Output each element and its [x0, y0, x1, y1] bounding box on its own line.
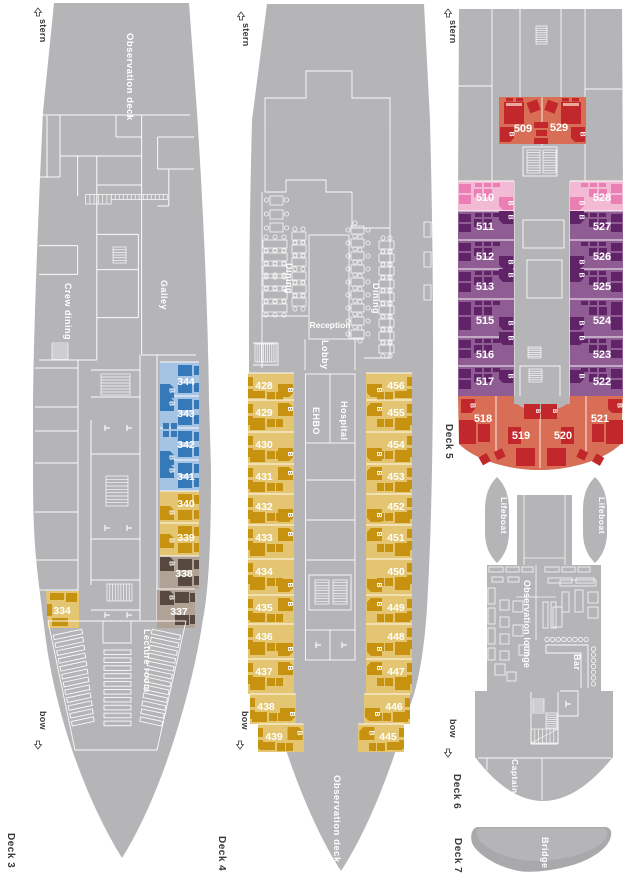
- svg-text:B: B: [286, 407, 293, 412]
- svg-text:339: 339: [177, 532, 195, 544]
- svg-text:447: 447: [387, 666, 405, 678]
- svg-text:510: 510: [476, 192, 494, 204]
- svg-text:B: B: [507, 215, 514, 220]
- svg-text:B: B: [579, 132, 586, 137]
- svg-text:Deck 4: Deck 4: [216, 836, 227, 871]
- svg-text:338: 338: [175, 568, 193, 580]
- svg-text:519: 519: [512, 430, 530, 442]
- svg-text:449: 449: [387, 602, 405, 614]
- svg-text:451: 451: [387, 532, 405, 544]
- svg-text:437: 437: [255, 666, 273, 678]
- svg-text:528: 528: [593, 192, 611, 204]
- svg-text:B: B: [375, 583, 382, 588]
- svg-text:453: 453: [387, 471, 405, 483]
- svg-text:B: B: [296, 731, 303, 736]
- svg-text:B: B: [507, 273, 514, 278]
- svg-text:B: B: [375, 602, 382, 607]
- svg-text:B: B: [288, 712, 295, 717]
- svg-text:Galley: Galley: [159, 280, 169, 310]
- svg-text:431: 431: [255, 471, 273, 483]
- svg-text:529: 529: [550, 122, 568, 134]
- svg-text:Deck 7: Deck 7: [452, 838, 463, 873]
- svg-text:433: 433: [255, 532, 273, 544]
- svg-text:B: B: [373, 712, 380, 717]
- svg-text:B: B: [469, 403, 476, 408]
- svg-text:521: 521: [591, 413, 609, 425]
- svg-text:B: B: [168, 468, 175, 473]
- svg-text:B: B: [286, 666, 293, 671]
- svg-text:B: B: [578, 374, 585, 379]
- svg-text:B: B: [578, 336, 585, 341]
- svg-text:B: B: [168, 561, 175, 566]
- svg-text:524: 524: [593, 315, 612, 327]
- svg-text:341: 341: [177, 471, 195, 483]
- svg-text:B: B: [375, 666, 382, 671]
- svg-text:B: B: [286, 583, 293, 588]
- svg-text:B: B: [286, 452, 293, 457]
- svg-text:B: B: [286, 602, 293, 607]
- svg-text:Deck 6: Deck 6: [451, 774, 462, 809]
- svg-text:Observation lounge: Observation lounge: [522, 580, 532, 668]
- svg-text:B: B: [367, 731, 374, 736]
- svg-text:bow: bow: [448, 719, 458, 739]
- svg-text:Captain: Captain: [510, 759, 520, 794]
- svg-text:B: B: [578, 215, 585, 220]
- svg-text:509: 509: [514, 123, 532, 135]
- svg-text:334: 334: [53, 605, 71, 617]
- svg-text:B: B: [375, 452, 382, 457]
- svg-text:B: B: [375, 471, 382, 476]
- svg-text:B: B: [507, 260, 514, 265]
- svg-text:340: 340: [177, 498, 195, 510]
- svg-text:435: 435: [255, 602, 273, 614]
- svg-text:B: B: [375, 513, 382, 518]
- svg-text:525: 525: [593, 281, 611, 293]
- svg-text:B: B: [168, 455, 175, 460]
- svg-text:518: 518: [474, 413, 492, 425]
- svg-text:513: 513: [476, 281, 494, 293]
- svg-text:Deck 5: Deck 5: [443, 424, 454, 459]
- svg-text:430: 430: [255, 439, 273, 451]
- svg-text:516: 516: [476, 349, 494, 361]
- svg-text:515: 515: [476, 315, 494, 327]
- svg-text:B: B: [286, 532, 293, 537]
- svg-text:456: 456: [387, 380, 405, 392]
- svg-text:429: 429: [255, 407, 273, 419]
- svg-text:436: 436: [255, 631, 273, 643]
- svg-text:445: 445: [379, 731, 397, 743]
- svg-text:B: B: [578, 260, 585, 265]
- svg-text:Dining: Dining: [284, 263, 294, 294]
- svg-text:527: 527: [593, 221, 611, 233]
- svg-text:B: B: [375, 388, 382, 393]
- svg-text:B: B: [551, 409, 557, 414]
- svg-text:B: B: [578, 273, 585, 278]
- svg-text:Crew dining: Crew dining: [63, 283, 73, 340]
- svg-text:Lobby: Lobby: [320, 340, 330, 370]
- svg-text:Observation deck: Observation deck: [124, 33, 135, 121]
- svg-text:B: B: [168, 538, 175, 543]
- svg-text:stern: stern: [241, 23, 251, 47]
- svg-text:B: B: [507, 201, 514, 206]
- svg-text:B: B: [375, 407, 382, 412]
- svg-text:B: B: [168, 595, 175, 600]
- svg-text:B: B: [286, 513, 293, 518]
- svg-text:439: 439: [265, 731, 283, 743]
- svg-text:434: 434: [255, 566, 273, 578]
- svg-text:446: 446: [385, 701, 403, 713]
- svg-text:455: 455: [387, 407, 405, 419]
- svg-text:428: 428: [255, 380, 273, 392]
- svg-text:bow: bow: [38, 711, 48, 731]
- svg-text:B: B: [286, 471, 293, 476]
- svg-text:B: B: [507, 336, 514, 341]
- svg-text:Hospital: Hospital: [339, 401, 349, 441]
- svg-text:B: B: [578, 321, 585, 326]
- svg-text:bow: bow: [240, 711, 250, 731]
- svg-text:450: 450: [387, 566, 405, 578]
- svg-text:337: 337: [170, 606, 188, 618]
- svg-text:517: 517: [476, 376, 494, 388]
- svg-text:B: B: [534, 409, 540, 414]
- svg-text:342: 342: [177, 439, 195, 451]
- svg-text:Observation deck: Observation deck: [331, 775, 342, 863]
- svg-text:526: 526: [593, 251, 611, 263]
- svg-text:Dining: Dining: [371, 283, 381, 314]
- svg-text:B: B: [507, 321, 514, 326]
- svg-text:B: B: [286, 388, 293, 393]
- svg-text:523: 523: [593, 349, 611, 361]
- svg-text:Bar: Bar: [572, 654, 582, 671]
- svg-text:B: B: [168, 388, 175, 393]
- svg-text:522: 522: [593, 376, 611, 388]
- svg-text:520: 520: [554, 430, 572, 442]
- svg-text:Bridge: Bridge: [540, 837, 550, 869]
- svg-text:512: 512: [476, 251, 494, 263]
- svg-text:B: B: [578, 201, 585, 206]
- svg-text:B: B: [168, 510, 175, 515]
- svg-text:454: 454: [387, 439, 405, 451]
- svg-text:511: 511: [476, 221, 494, 233]
- svg-text:Lifeboat: Lifeboat: [499, 497, 509, 534]
- svg-text:B: B: [507, 374, 514, 379]
- svg-text:stern: stern: [38, 19, 48, 43]
- svg-text:B: B: [286, 647, 293, 652]
- svg-text:EHBO: EHBO: [311, 407, 321, 435]
- svg-text:344: 344: [177, 376, 195, 388]
- svg-text:B: B: [375, 647, 382, 652]
- svg-text:B: B: [168, 401, 175, 406]
- svg-text:343: 343: [177, 408, 195, 420]
- svg-text:438: 438: [257, 701, 275, 713]
- svg-text:Reception: Reception: [309, 320, 350, 330]
- svg-text:448: 448: [387, 631, 405, 643]
- svg-text:stern: stern: [448, 20, 458, 44]
- svg-text:Deck 3: Deck 3: [5, 833, 16, 868]
- svg-text:452: 452: [387, 501, 405, 513]
- svg-text:B: B: [375, 532, 382, 537]
- svg-text:Lifeboat: Lifeboat: [597, 497, 607, 534]
- svg-text:432: 432: [255, 501, 273, 513]
- svg-text:B: B: [616, 403, 623, 408]
